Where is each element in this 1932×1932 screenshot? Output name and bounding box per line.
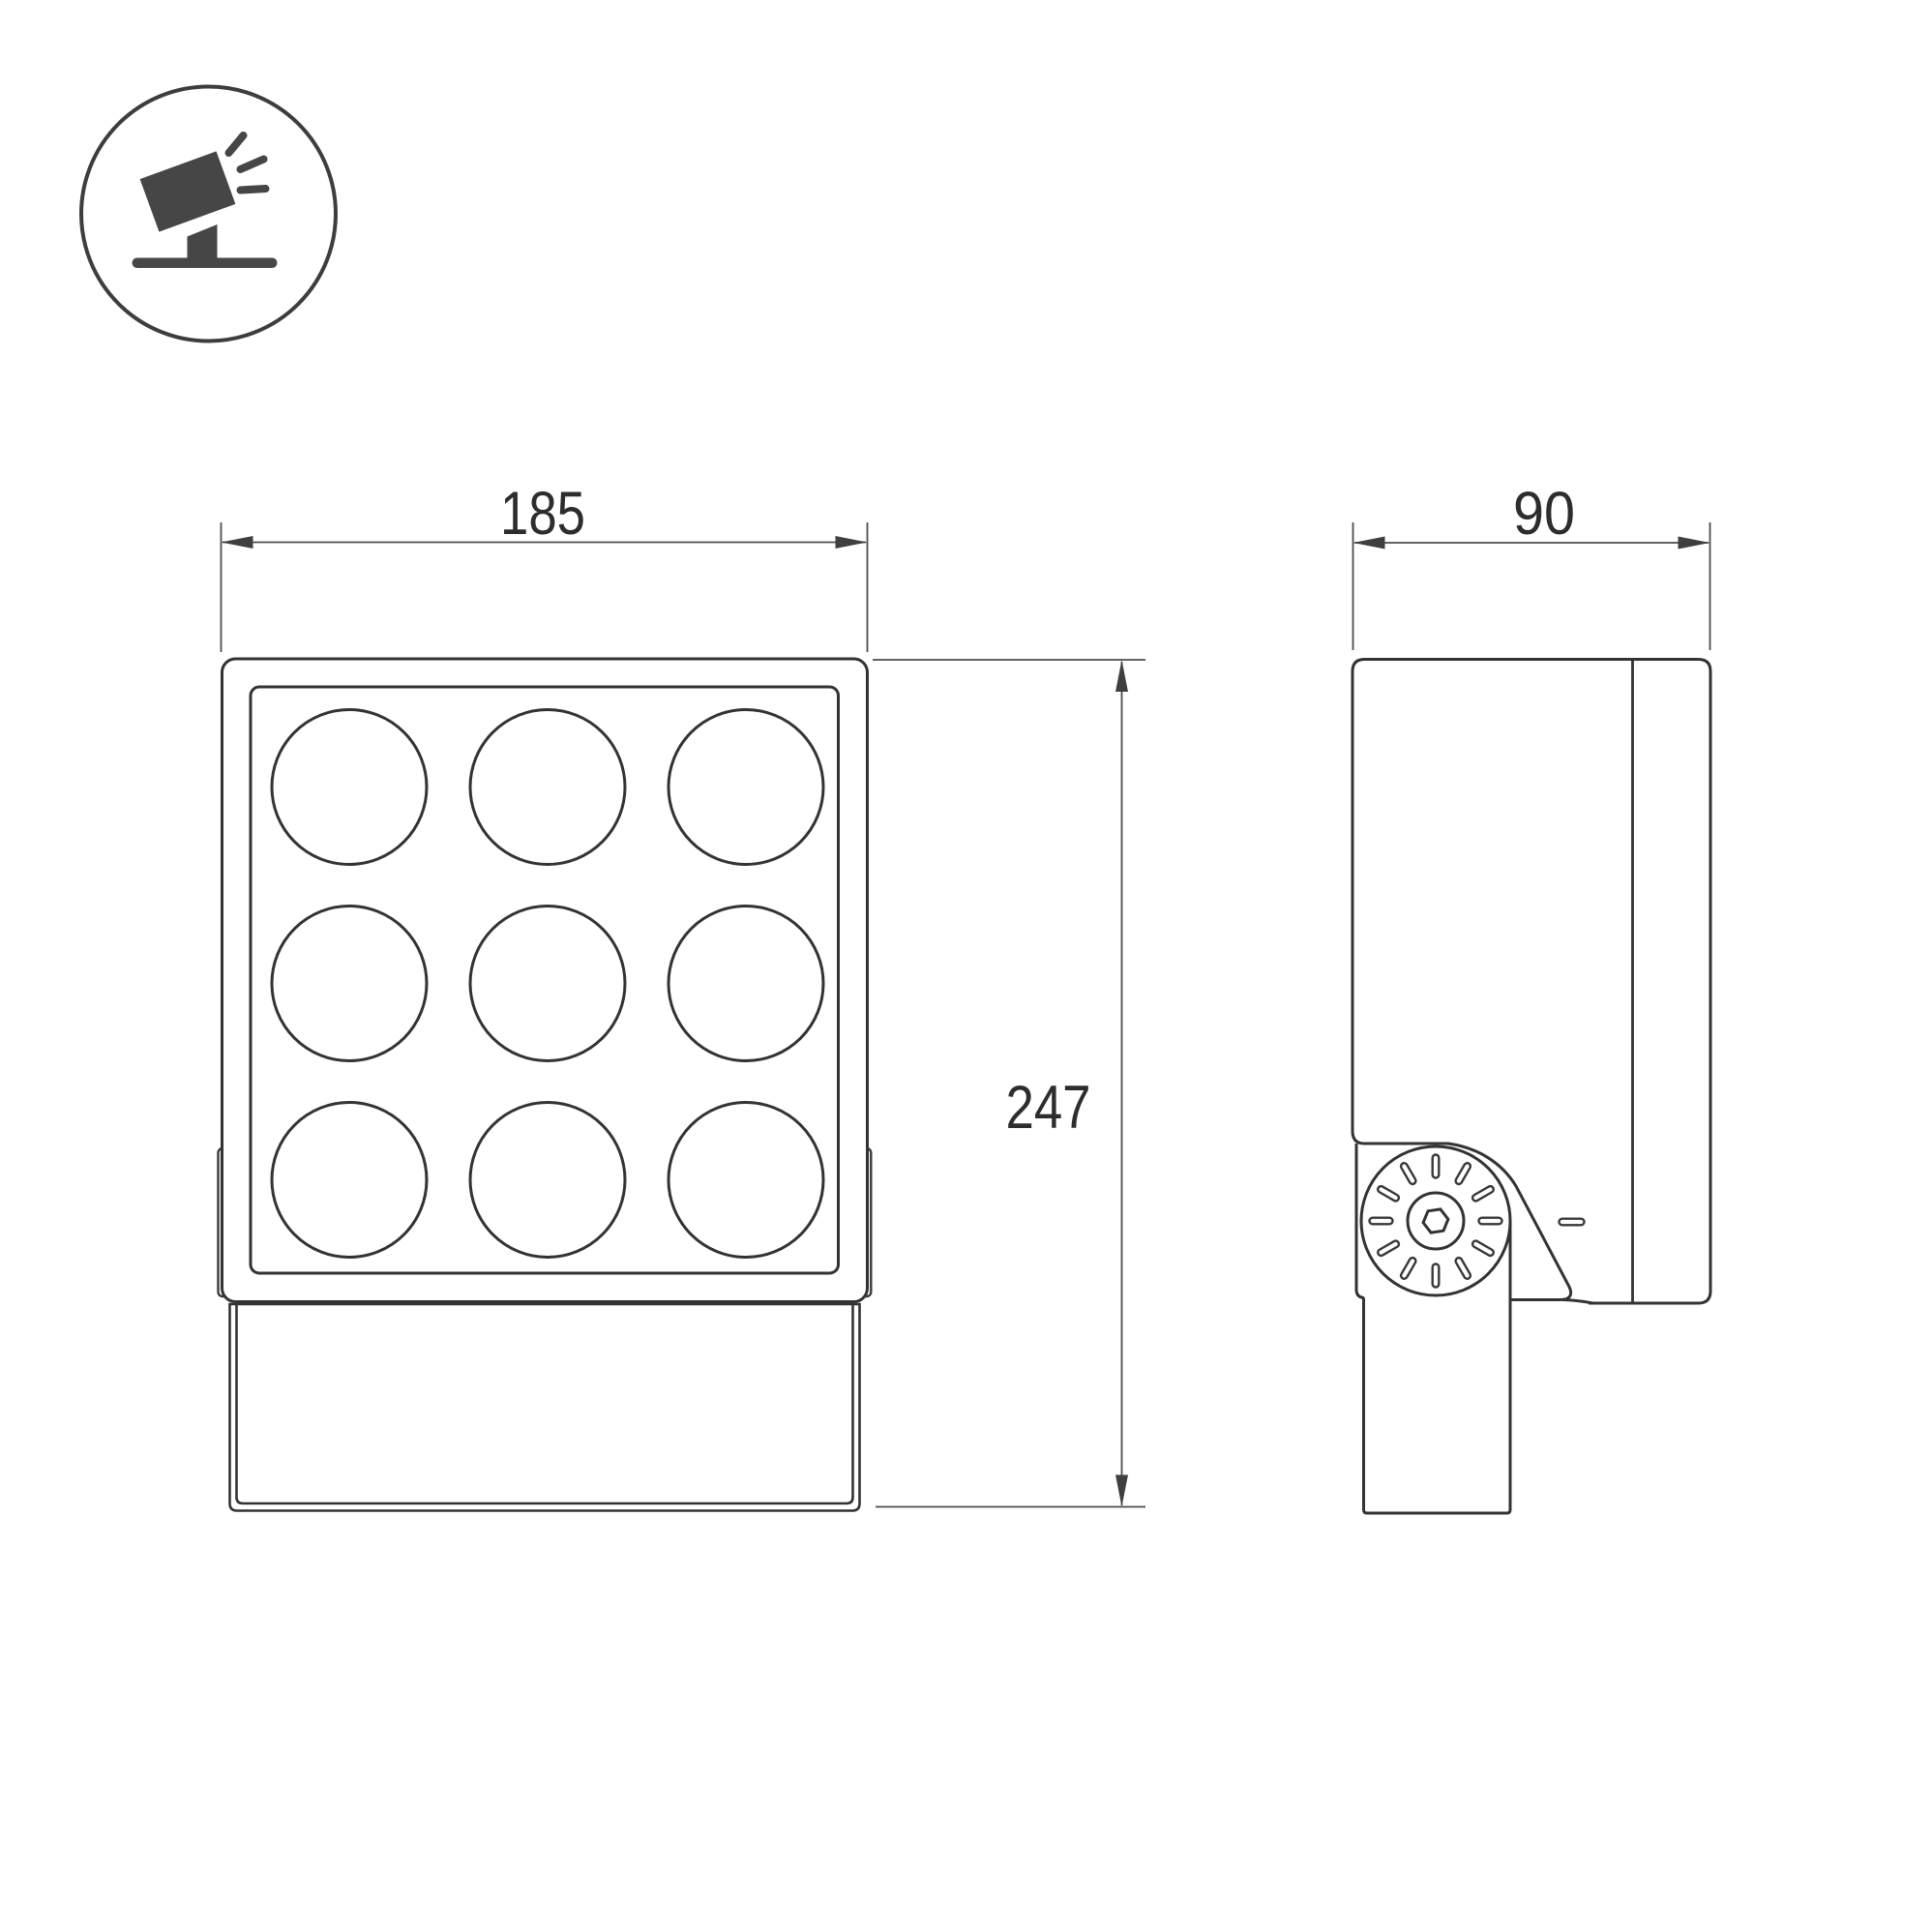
svg-text:247: 247 — [1006, 1074, 1091, 1142]
svg-text:90: 90 — [1513, 480, 1575, 548]
svg-text:185: 185 — [500, 480, 585, 548]
